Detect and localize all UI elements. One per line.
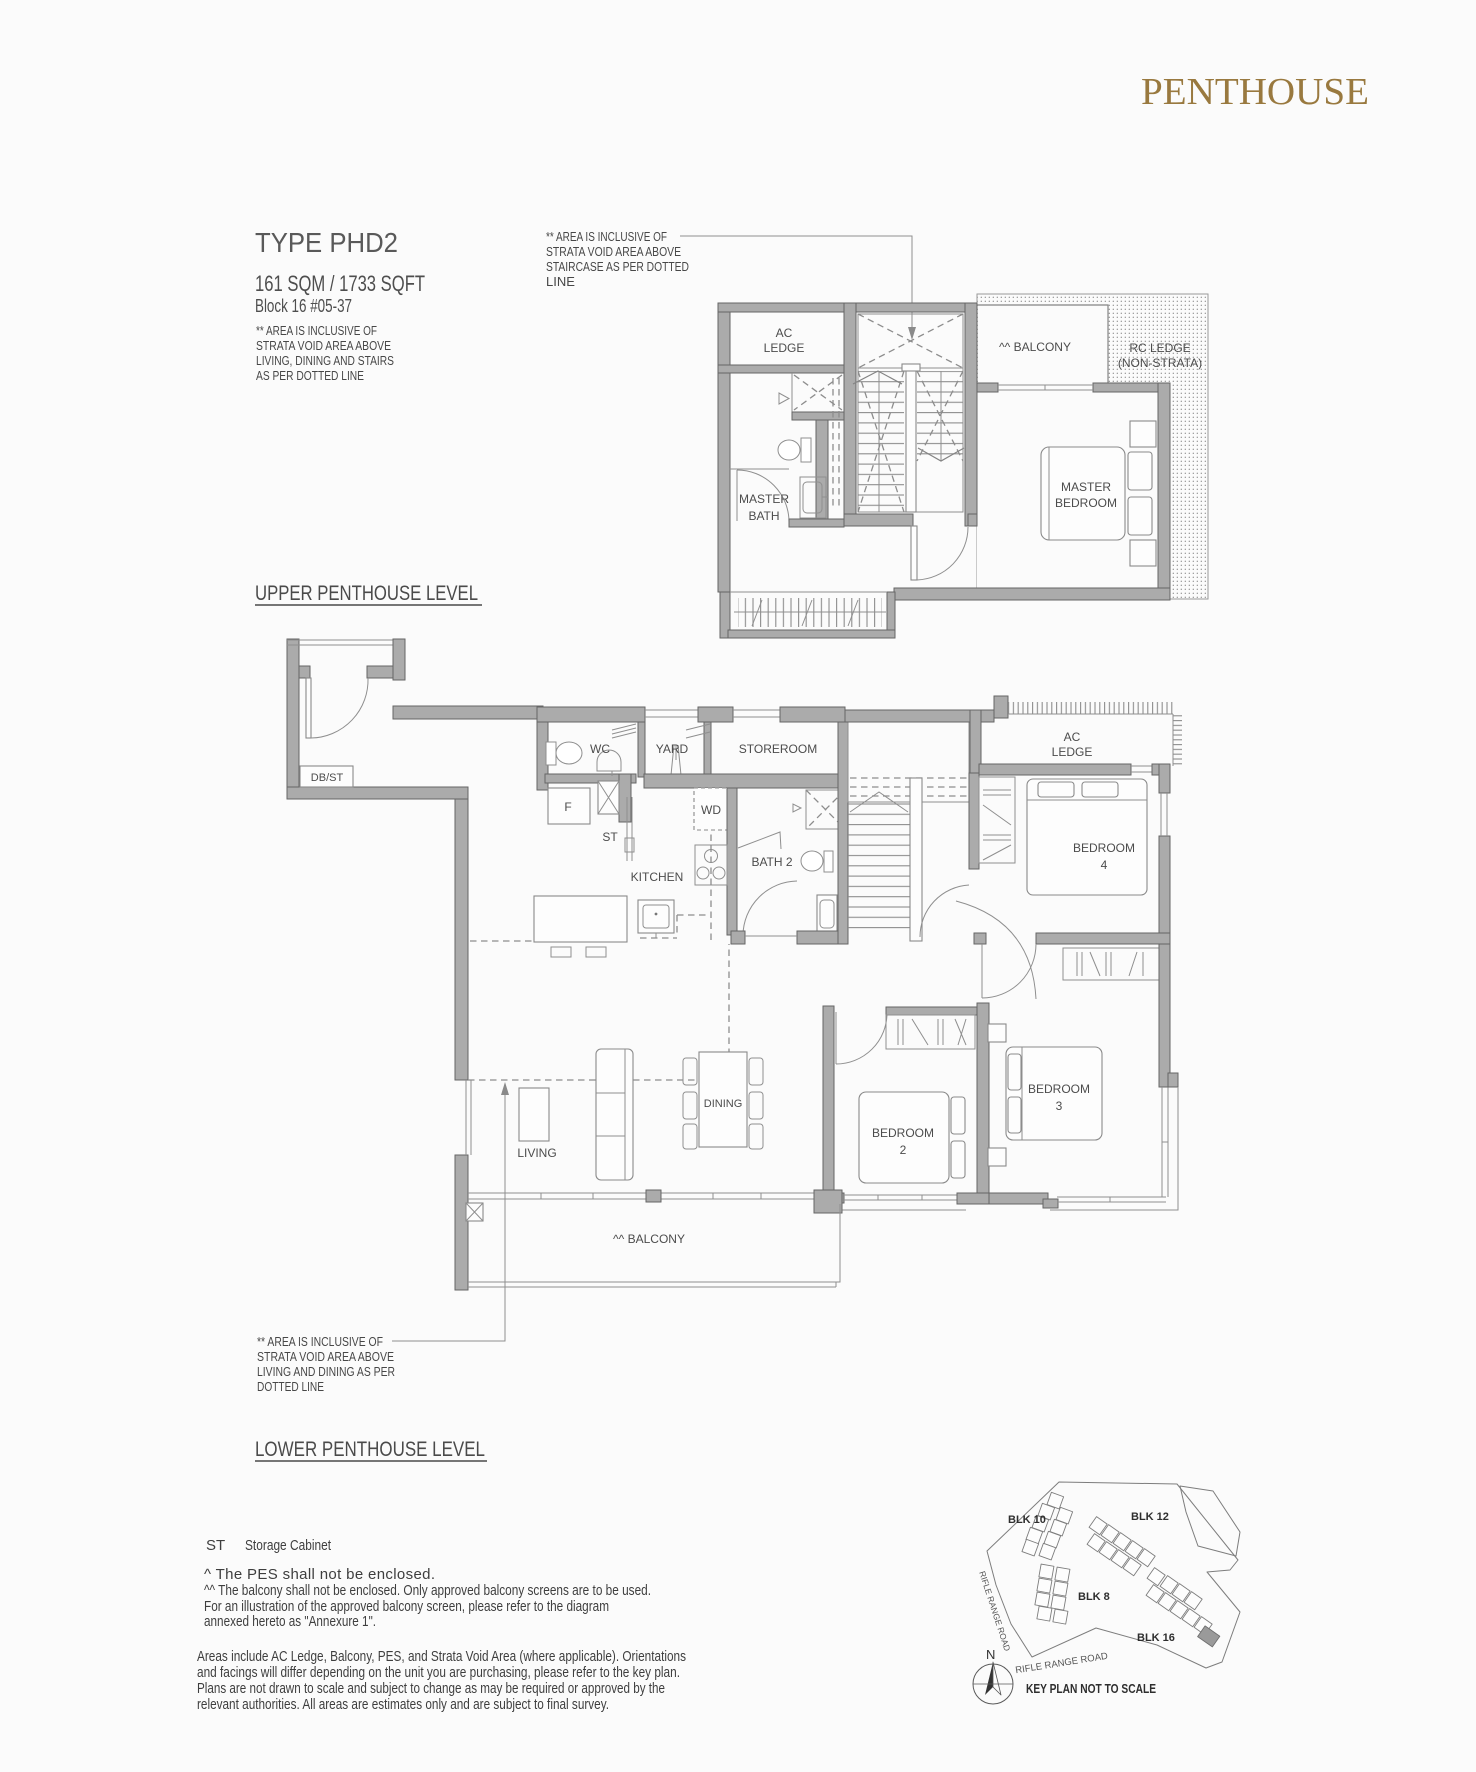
svg-text:WD: WD bbox=[701, 803, 721, 817]
svg-text:KITCHEN: KITCHEN bbox=[631, 870, 684, 884]
svg-text:DINING: DINING bbox=[704, 1098, 743, 1110]
svg-text:WC: WC bbox=[590, 742, 610, 756]
svg-text:PENTHOUSE: PENTHOUSE bbox=[1141, 71, 1369, 113]
svg-text:(NON-STRATA): (NON-STRATA) bbox=[1118, 356, 1202, 370]
svg-text:STRATA VOID AREA ABOVE: STRATA VOID AREA ABOVE bbox=[546, 244, 681, 259]
svg-text:^ The PES shall not be enclos: ^ The PES shall not be enclosed. bbox=[204, 1566, 435, 1583]
svg-text:Plans are not drawn to scale a: Plans are not drawn to scale and subject… bbox=[197, 1680, 665, 1697]
svg-text:3: 3 bbox=[1056, 1099, 1063, 1113]
svg-text:relevant authorities. All area: relevant authorities. All areas are esti… bbox=[197, 1696, 609, 1713]
svg-text:BEDROOM: BEDROOM bbox=[1055, 496, 1117, 510]
svg-text:AS PER DOTTED LINE: AS PER DOTTED LINE bbox=[256, 368, 364, 383]
svg-text:YARD: YARD bbox=[656, 742, 689, 756]
svg-text:BLK 16: BLK 16 bbox=[1137, 1632, 1175, 1644]
svg-text:LIVING AND DINING AS PER: LIVING AND DINING AS PER bbox=[257, 1364, 395, 1379]
svg-text:BATH: BATH bbox=[748, 509, 779, 523]
svg-text:2: 2 bbox=[900, 1143, 907, 1157]
svg-text:annexed hereto as "Annexure 1": annexed hereto as "Annexure 1". bbox=[204, 1613, 376, 1630]
svg-text:MASTER: MASTER bbox=[1061, 480, 1111, 494]
svg-text:BATH 2: BATH 2 bbox=[751, 855, 792, 869]
svg-text:N: N bbox=[986, 1647, 995, 1662]
svg-text:UPPER PENTHOUSE LEVEL: UPPER PENTHOUSE LEVEL bbox=[255, 582, 478, 605]
svg-text:BEDROOM: BEDROOM bbox=[872, 1126, 934, 1140]
svg-text:** AREA IS INCLUSIVE OF: ** AREA IS INCLUSIVE OF bbox=[546, 229, 667, 244]
svg-text:DB/ST: DB/ST bbox=[311, 772, 344, 784]
svg-text:Storage Cabinet: Storage Cabinet bbox=[245, 1537, 332, 1554]
svg-text:^^ The balcony shall not be en: ^^ The balcony shall not be enclosed. On… bbox=[204, 1582, 651, 1599]
svg-text:^^ BALCONY: ^^ BALCONY bbox=[613, 1232, 685, 1246]
svg-text:LIVING, DINING AND STAIRS: LIVING, DINING AND STAIRS bbox=[256, 353, 394, 368]
svg-text:STRATA VOID AREA ABOVE: STRATA VOID AREA ABOVE bbox=[257, 1349, 394, 1364]
svg-text:AC: AC bbox=[776, 326, 793, 340]
svg-text:LIVING: LIVING bbox=[517, 1146, 556, 1160]
svg-text:AC: AC bbox=[1064, 730, 1081, 744]
svg-text:LEDGE: LEDGE bbox=[764, 341, 805, 355]
svg-text:KEY PLAN NOT TO SCALE: KEY PLAN NOT TO SCALE bbox=[1026, 1681, 1156, 1696]
svg-text:LOWER PENTHOUSE LEVEL: LOWER PENTHOUSE LEVEL bbox=[255, 1438, 485, 1461]
svg-text:BEDROOM: BEDROOM bbox=[1028, 1082, 1090, 1096]
svg-text:** AREA IS INCLUSIVE OF: ** AREA IS INCLUSIVE OF bbox=[256, 323, 377, 338]
svg-text:BLK 8: BLK 8 bbox=[1078, 1591, 1110, 1603]
svg-text:ST: ST bbox=[206, 1537, 225, 1554]
svg-text:STRATA VOID AREA ABOVE: STRATA VOID AREA ABOVE bbox=[256, 338, 391, 353]
svg-text:TYPE PHD2: TYPE PHD2 bbox=[255, 227, 398, 258]
svg-text:STOREROOM: STOREROOM bbox=[739, 742, 817, 756]
svg-text:RC LEDGE: RC LEDGE bbox=[1129, 341, 1190, 355]
svg-text:^^ BALCONY: ^^ BALCONY bbox=[999, 340, 1071, 354]
svg-text:BEDROOM: BEDROOM bbox=[1073, 841, 1135, 855]
svg-text:MASTER: MASTER bbox=[739, 492, 789, 506]
svg-text:ST: ST bbox=[602, 830, 618, 844]
svg-text:161 SQM / 1733 SQFT: 161 SQM / 1733 SQFT bbox=[255, 271, 425, 296]
svg-text:BLK 12: BLK 12 bbox=[1131, 1511, 1169, 1523]
svg-text:LEDGE: LEDGE bbox=[1052, 745, 1093, 759]
svg-text:and facings will differ depend: and facings will differ depending on the… bbox=[197, 1664, 680, 1681]
svg-text:DOTTED LINE: DOTTED LINE bbox=[257, 1379, 324, 1394]
svg-text:STAIRCASE AS PER DOTTED: STAIRCASE AS PER DOTTED bbox=[546, 259, 689, 274]
svg-text:4: 4 bbox=[1101, 858, 1108, 872]
svg-text:BLK 10: BLK 10 bbox=[1008, 1514, 1046, 1526]
svg-text:F: F bbox=[564, 800, 571, 814]
svg-text:Block 16 #05-37: Block 16 #05-37 bbox=[255, 295, 352, 316]
svg-text:LINE: LINE bbox=[546, 274, 575, 289]
svg-text:** AREA IS INCLUSIVE OF: ** AREA IS INCLUSIVE OF bbox=[257, 1334, 383, 1349]
svg-text:Areas include AC Ledge, Balcon: Areas include AC Ledge, Balcony, PES, an… bbox=[197, 1648, 686, 1665]
